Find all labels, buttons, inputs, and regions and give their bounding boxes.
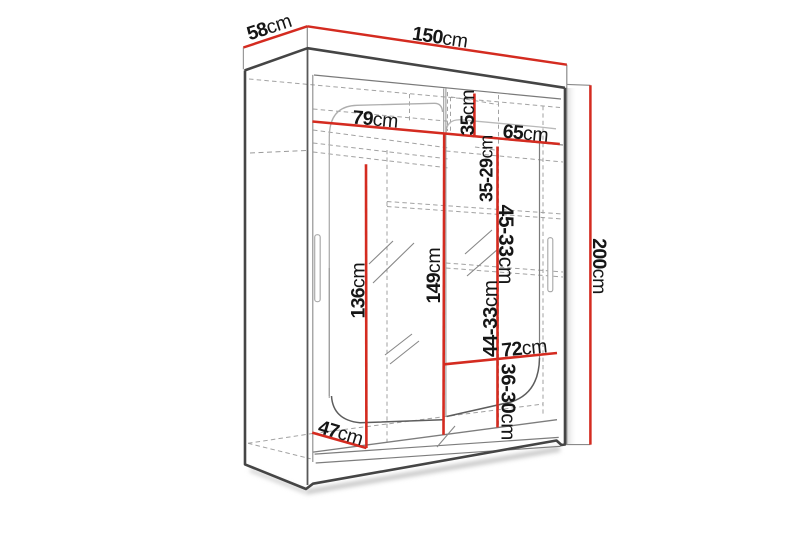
svg-text:36-30cm: 36-30cm [497,363,520,440]
svg-text:149cm: 149cm [423,248,445,304]
svg-text:200cm: 200cm [588,238,610,294]
svg-text:45-33cm: 45-33cm [494,205,517,285]
svg-text:35-29cm: 35-29cm [477,135,497,202]
svg-text:65cm: 65cm [502,121,550,147]
svg-text:35cm: 35cm [457,90,479,136]
svg-text:44-33cm: 44-33cm [479,280,502,357]
svg-text:136cm: 136cm [347,263,369,319]
svg-text:79cm: 79cm [352,107,400,133]
svg-text:72cm: 72cm [501,335,549,361]
